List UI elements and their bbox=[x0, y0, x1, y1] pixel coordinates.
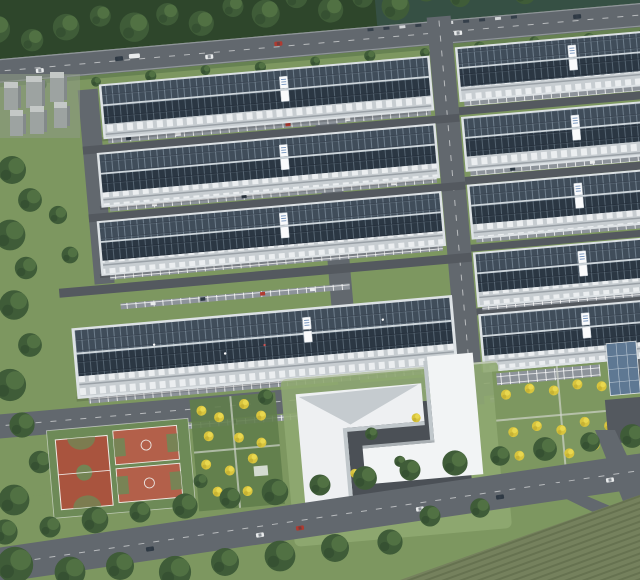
tree bbox=[49, 206, 67, 224]
scene-canvas bbox=[0, 0, 640, 580]
tree bbox=[82, 507, 109, 534]
basketball-court-large bbox=[55, 435, 113, 509]
tree bbox=[9, 412, 34, 437]
aerial-rendering: Aerial rendering of an industrial park c… bbox=[0, 0, 640, 580]
tree bbox=[40, 517, 61, 538]
car bbox=[274, 41, 282, 46]
tree bbox=[310, 475, 331, 496]
tree bbox=[400, 460, 421, 481]
car bbox=[115, 56, 123, 61]
tree bbox=[18, 333, 42, 357]
car bbox=[205, 54, 213, 59]
tree bbox=[211, 548, 239, 576]
tree bbox=[420, 506, 441, 527]
tree bbox=[15, 257, 37, 279]
utility-cube bbox=[26, 76, 45, 108]
tree bbox=[377, 529, 402, 554]
utility-cube bbox=[50, 72, 67, 102]
tree bbox=[29, 451, 51, 473]
utility-cube bbox=[4, 82, 21, 110]
bus bbox=[129, 53, 140, 58]
utility-cube bbox=[30, 106, 47, 134]
tree bbox=[470, 498, 490, 518]
tree bbox=[321, 534, 349, 562]
car bbox=[36, 68, 44, 73]
utility-blocks bbox=[0, 72, 80, 138]
tree bbox=[18, 188, 42, 212]
tree bbox=[490, 446, 510, 466]
tree bbox=[172, 493, 197, 518]
tree bbox=[265, 541, 296, 572]
tree bbox=[0, 290, 29, 319]
car bbox=[454, 30, 462, 35]
tree bbox=[262, 479, 289, 506]
tree bbox=[580, 432, 600, 452]
tree bbox=[0, 485, 29, 516]
tree bbox=[442, 450, 467, 475]
tree bbox=[353, 466, 377, 490]
tree bbox=[62, 247, 79, 264]
tree bbox=[220, 488, 241, 509]
tree bbox=[533, 437, 557, 461]
basketball-court-small-1 bbox=[113, 425, 180, 464]
tree bbox=[106, 552, 134, 580]
tree bbox=[130, 502, 151, 523]
car bbox=[573, 14, 581, 19]
garden-pavilion bbox=[254, 465, 269, 476]
basketball-court-small-2 bbox=[116, 463, 183, 502]
